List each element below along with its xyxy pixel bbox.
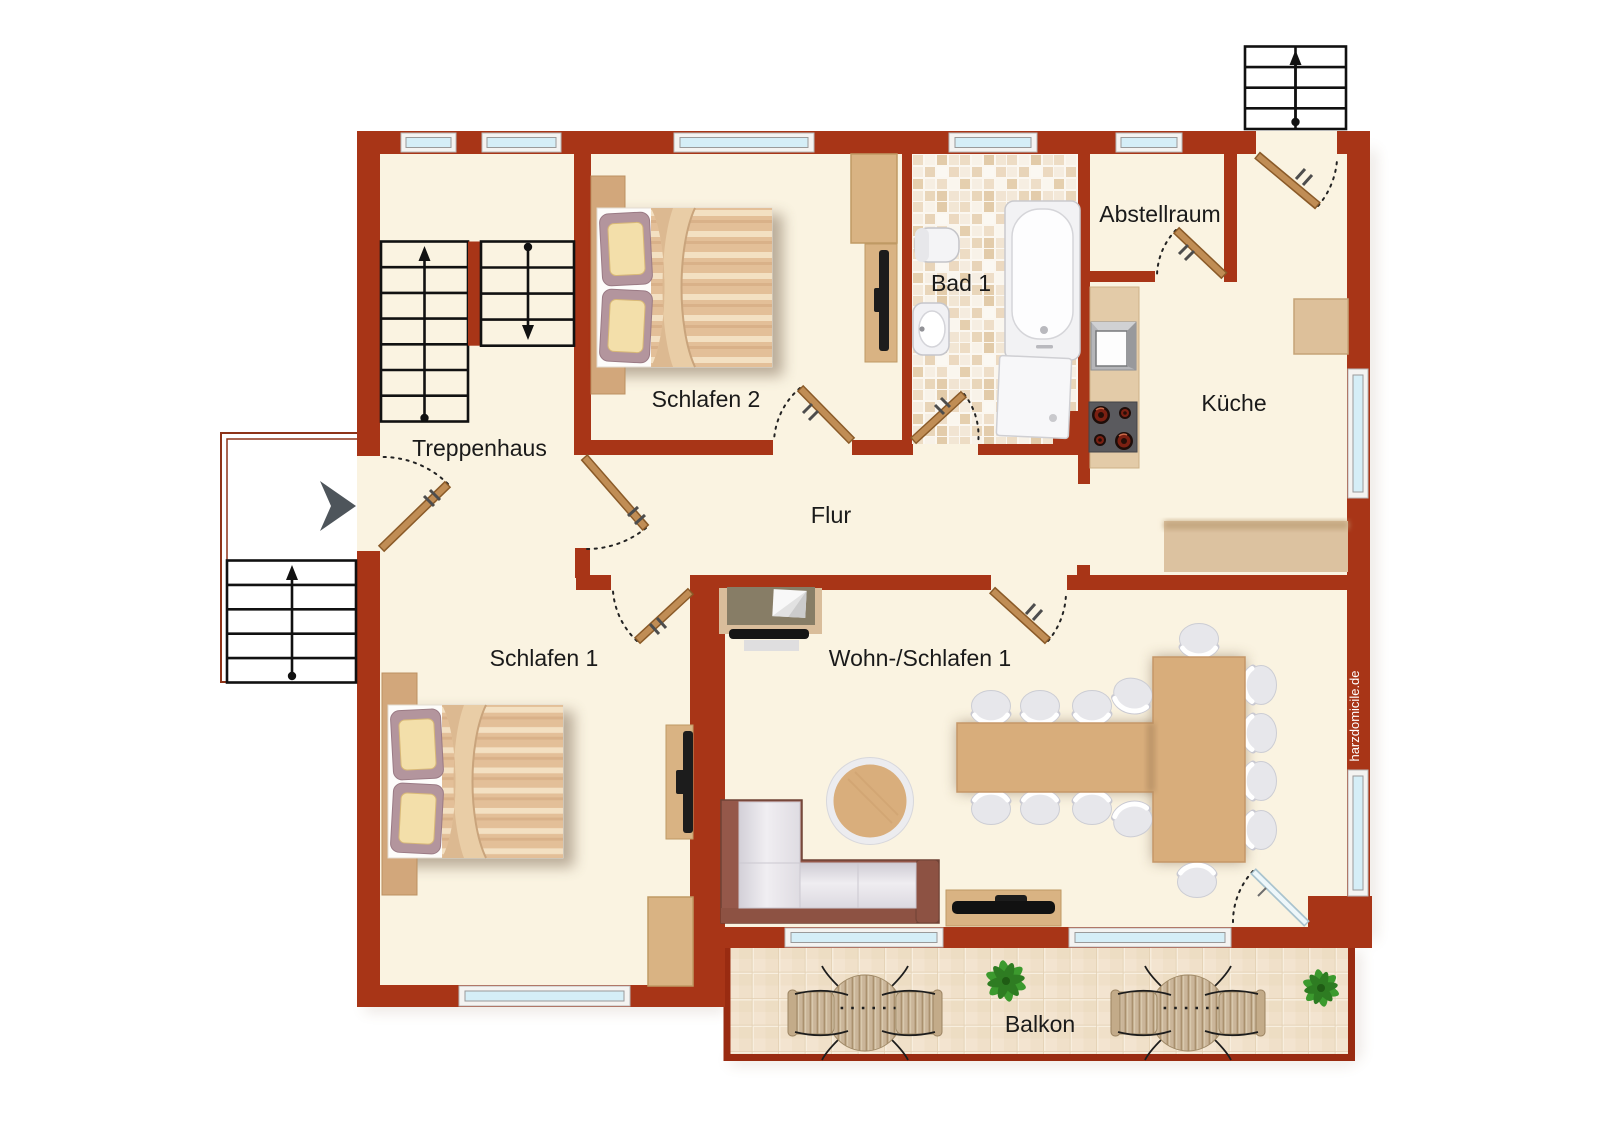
svg-text:Wohn-/Schlafen 1: Wohn-/Schlafen 1	[829, 645, 1011, 671]
svg-text:harzdomicile.de: harzdomicile.de	[1347, 670, 1362, 761]
svg-text:Schlafen 1: Schlafen 1	[490, 645, 599, 671]
svg-text:Flur: Flur	[811, 502, 852, 528]
svg-text:Balkon: Balkon	[1005, 1011, 1075, 1037]
svg-text:Schlafen 2: Schlafen 2	[652, 386, 761, 412]
svg-text:Treppenhaus: Treppenhaus	[412, 435, 547, 461]
svg-text:Abstellraum: Abstellraum	[1099, 201, 1220, 227]
svg-text:Bad 1: Bad 1	[931, 270, 991, 296]
svg-text:Küche: Küche	[1201, 390, 1266, 416]
